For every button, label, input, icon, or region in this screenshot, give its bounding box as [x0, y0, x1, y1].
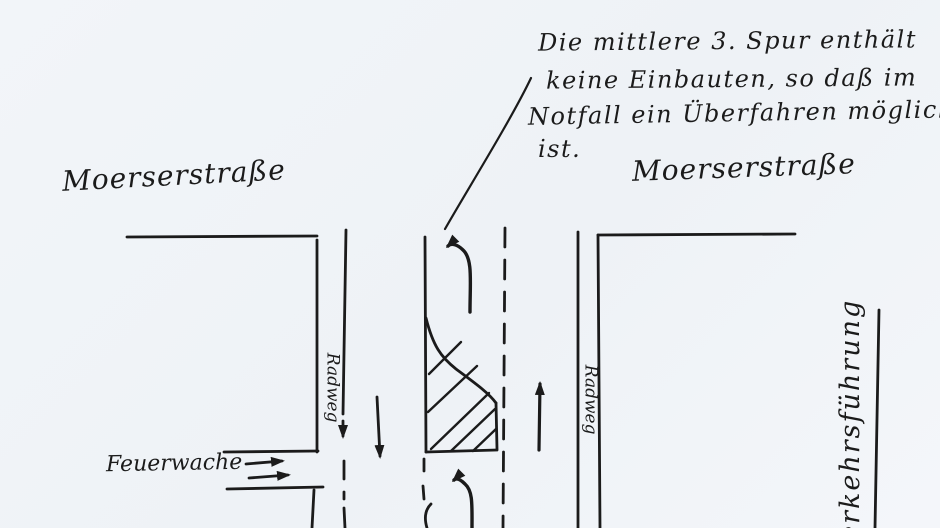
middle-lane-left-dash-2: [423, 486, 424, 499]
median-island-right-edge: [496, 403, 497, 449]
left-block-top-edge: [127, 236, 317, 237]
fire-exit-arrow-1: [246, 461, 282, 464]
right-block-top-edge: [598, 234, 795, 235]
annotation-leader-line: [445, 78, 531, 229]
annotation-note-line-4: ist.: [538, 134, 581, 164]
bike-path-label-right: Radweg: [579, 360, 600, 440]
annotation-note-line-1: Die mittlere 3. Spur enthält: [538, 24, 917, 57]
dashed-lane-line: [503, 228, 505, 528]
annotation-note-line-2: keine Einbauten, so daß im: [546, 62, 917, 95]
fire-station-box-bottom: [227, 487, 323, 489]
left-curb-lower: [312, 490, 314, 528]
left-turn-arrow-top: [448, 244, 470, 312]
fire-exit-arrow-2: [249, 475, 288, 478]
fire-station-label: Feuerwache: [106, 449, 243, 479]
left-turn-arrow-bottom: [454, 479, 472, 528]
middle-lane-left-line: [425, 237, 426, 452]
median-island-bottom-edge: [426, 450, 497, 452]
straight-arrow-up: [539, 384, 540, 450]
bike-lane-left-dash-3: [344, 508, 345, 528]
middle-lane-left-dash-hook: [425, 504, 431, 528]
traffic-routing-label: Verkehrsführung: [834, 301, 868, 528]
far-right-edge-line: [875, 310, 879, 528]
bike-path-label-left: Radweg: [321, 348, 342, 428]
straight-arrow-down: [377, 397, 380, 456]
median-island-curve: [426, 318, 496, 403]
median-island-hatching: [428, 342, 496, 451]
scanned-traffic-sketch: Die mittlere 3. Spur enthält keine Einba…: [0, 0, 940, 528]
bike-lane-left-line: [343, 230, 346, 414]
